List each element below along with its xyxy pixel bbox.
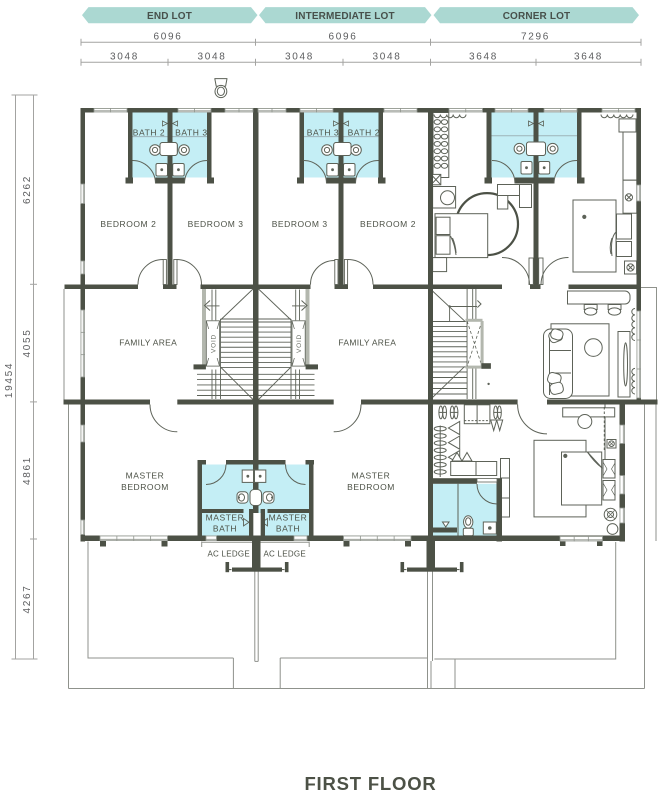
- svg-text:MASTER: MASTER: [352, 471, 391, 481]
- svg-text:BEDROOM 3: BEDROOM 3: [272, 219, 328, 229]
- svg-text:3048: 3048: [285, 51, 314, 62]
- svg-text:BATH 2: BATH 2: [348, 127, 380, 137]
- svg-text:BATH 3: BATH 3: [175, 127, 207, 137]
- svg-text:6262: 6262: [22, 175, 33, 204]
- svg-text:7296: 7296: [521, 31, 550, 42]
- svg-text:6096: 6096: [328, 31, 357, 42]
- svg-text:3048: 3048: [372, 51, 401, 62]
- svg-text:3648: 3648: [469, 51, 498, 62]
- svg-text:4861: 4861: [22, 456, 33, 485]
- svg-text:19454: 19454: [4, 362, 15, 398]
- svg-text:6096: 6096: [153, 31, 182, 42]
- svg-text:BEDROOM 3: BEDROOM 3: [188, 219, 244, 229]
- svg-text:CORNER LOT: CORNER LOT: [503, 11, 571, 22]
- svg-text:BEDROOM: BEDROOM: [121, 482, 169, 492]
- svg-text:AC LEDGE: AC LEDGE: [263, 550, 305, 559]
- svg-text:BATH 2: BATH 2: [133, 127, 165, 137]
- svg-text:END LOT: END LOT: [147, 11, 192, 22]
- svg-text:FAMILY AREA: FAMILY AREA: [338, 337, 396, 347]
- svg-text:BEDROOM 2: BEDROOM 2: [360, 219, 416, 229]
- svg-text:BATH: BATH: [213, 524, 237, 534]
- svg-text:BEDROOM: BEDROOM: [347, 482, 395, 492]
- svg-text:VOID: VOID: [211, 334, 218, 353]
- svg-text:4055: 4055: [22, 328, 33, 357]
- svg-text:FAMILY AREA: FAMILY AREA: [119, 337, 177, 347]
- svg-text:AC LEDGE: AC LEDGE: [207, 550, 249, 559]
- svg-text:4267: 4267: [22, 584, 33, 613]
- svg-text:INTERMEDIATE LOT: INTERMEDIATE LOT: [295, 11, 394, 22]
- svg-text:BATH: BATH: [276, 524, 300, 534]
- svg-text:3048: 3048: [110, 51, 139, 62]
- svg-text:MASTER: MASTER: [269, 513, 308, 523]
- svg-text:FIRST FLOOR: FIRST FLOOR: [304, 773, 436, 794]
- svg-text:MASTER: MASTER: [126, 471, 165, 481]
- svg-text:MASTER: MASTER: [206, 513, 245, 523]
- svg-text:3048: 3048: [197, 51, 226, 62]
- svg-text:3648: 3648: [574, 51, 603, 62]
- svg-text:VOID: VOID: [296, 334, 303, 353]
- svg-text:BATH 3: BATH 3: [307, 127, 339, 137]
- svg-text:BEDROOM 2: BEDROOM 2: [100, 219, 156, 229]
